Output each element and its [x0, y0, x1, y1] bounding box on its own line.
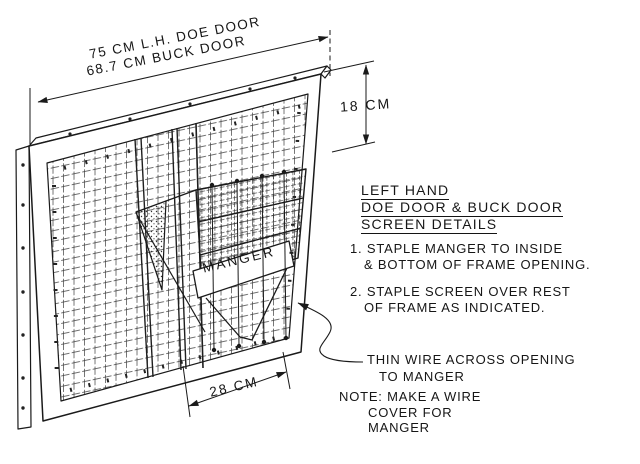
- title-line-2: DOE DOOR & BUCK DOOR: [361, 201, 563, 217]
- title-block: LEFT HAND DOE DOOR & BUCK DOOR SCREEN DE…: [361, 184, 563, 235]
- thin-wire-callout: THIN WIRE ACROSS OPENING TO MANGER: [367, 351, 575, 385]
- title-line-1: LEFT HAND: [361, 184, 449, 200]
- title-line-3: SCREEN DETAILS: [361, 218, 497, 234]
- wire-cover-note-line-1: NOTE: MAKE A WIRE: [339, 389, 481, 405]
- wire-cover-note: NOTE: MAKE A WIRE COVER FOR MANGER: [339, 389, 481, 436]
- notes-list: 1. STAPLE MANGER TO INSIDE & BOTTOM OF F…: [350, 241, 590, 316]
- note-1-line-2: & BOTTOM OF FRAME OPENING.: [364, 257, 590, 273]
- thin-wire-callout-line-1: THIN WIRE ACROSS OPENING: [367, 351, 575, 368]
- note-1-line-1: 1. STAPLE MANGER TO INSIDE: [350, 241, 590, 257]
- note-2-line-1: 2. STAPLE SCREEN OVER REST: [350, 284, 590, 300]
- blueprint-page: 75 CM L.H. DOE DOOR 68.7 CM BUCK DOOR 18…: [0, 0, 640, 464]
- wire-cover-note-line-2: COVER FOR: [368, 405, 481, 421]
- thin-wire-callout-line-2: TO MANGER: [379, 368, 575, 385]
- wire-cover-note-line-3: MANGER: [368, 420, 481, 436]
- note-2-line-2: OF FRAME AS INDICATED.: [364, 300, 590, 316]
